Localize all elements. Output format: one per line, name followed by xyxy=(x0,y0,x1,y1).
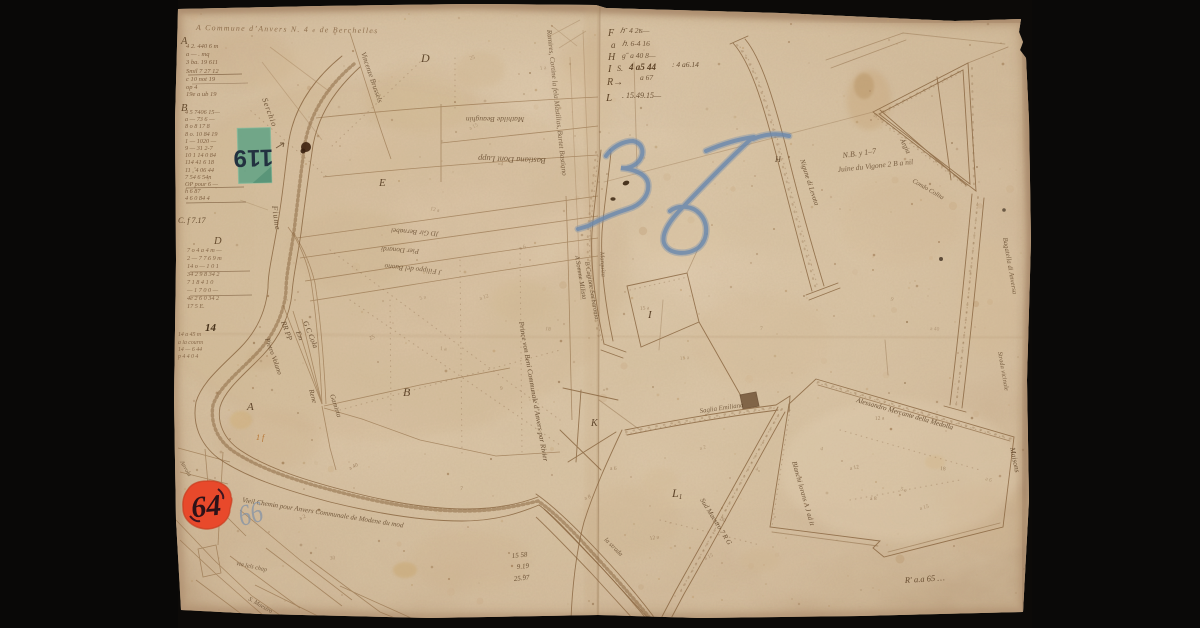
svg-text:L: L xyxy=(605,92,612,104)
svg-text:64: 64 xyxy=(190,489,223,525)
svg-text:15 a: 15 a xyxy=(640,305,650,312)
svg-text:7 o 4 a 4 m —: 7 o 4 a 4 m — xyxy=(187,247,222,254)
svg-text:12 a: 12 a xyxy=(875,415,885,422)
svg-text:H: H xyxy=(607,52,616,63)
svg-text:14: 14 xyxy=(205,322,217,334)
svg-text:— 1 7 0 0 —: — 1 7 0 0 — xyxy=(186,287,219,294)
svg-text:4 5 7406 15—: 4 5 7406 15— xyxy=(185,109,220,116)
svg-text:4 6 0 84 4: 4 6 0 84 4 xyxy=(185,195,210,202)
svg-text:C. f 7.17: C. f 7.17 xyxy=(178,216,207,225)
svg-text:4 a5 44: 4 a5 44 xyxy=(628,62,657,72)
svg-text:18: 18 xyxy=(940,466,946,473)
svg-text:14 o — 1 0 1: 14 o — 1 0 1 xyxy=(187,263,219,270)
svg-text:D: D xyxy=(213,236,222,247)
svg-text:c 10 not 19: c 10 not 19 xyxy=(186,76,216,83)
svg-text:a — 73 6 —: a — 73 6 — xyxy=(185,116,215,123)
svg-text:4 2. 440 6 m: 4 2. 440 6 m xyxy=(186,43,219,50)
svg-text:14 — 6 44: 14 — 6 44 xyxy=(178,346,202,353)
svg-text:17 5 E.: 17 5 E. xyxy=(187,303,205,310)
svg-text:I: I xyxy=(607,64,612,75)
svg-text:7 1 8 4 1 0: 7 1 8 4 1 0 xyxy=(187,279,214,286)
svg-text:h 6 87: h 6 87 xyxy=(185,188,201,195)
svg-text:D: D xyxy=(420,51,430,65)
svg-text:A: A xyxy=(246,401,254,413)
svg-text:a — . mq: a — . mq xyxy=(186,51,210,58)
svg-text:114 41 6 18: 114 41 6 18 xyxy=(185,159,215,166)
svg-text:3 ba. 19 611: 3 ba. 19 611 xyxy=(185,59,218,66)
svg-text:119: 119 xyxy=(233,144,274,172)
svg-text:ℎ˜ 4 2ʦ—: ℎ˜ 4 2ʦ— xyxy=(620,26,650,35)
svg-text:25.97: 25.97 xyxy=(513,573,530,583)
svg-text:F: F xyxy=(607,28,615,39)
svg-text:g˝ a 40 8—: g˝ a 40 8— xyxy=(622,51,656,60)
svg-text:a la courm: a la courm xyxy=(178,340,203,346)
svg-text:15 58: 15 58 xyxy=(511,550,528,560)
svg-text:1 — 1020 —: 1 — 1020 — xyxy=(185,138,217,145)
svg-text:B: B xyxy=(403,385,411,399)
svg-text:11 , 4 06 44: 11 , 4 06 44 xyxy=(185,167,214,174)
svg-text:ℎ. 6-4 16: ℎ. 6-4 16 xyxy=(622,39,650,48)
svg-text:19e a ub 19: 19e a ub 19 xyxy=(186,91,217,98)
svg-text:a 6: a 6 xyxy=(610,466,617,472)
svg-text:p 4 4 0 4: p 4 4 0 4 xyxy=(177,353,198,360)
svg-text:a 8: a 8 xyxy=(870,496,877,502)
svg-text:10 1 14 0 84: 10 1 14 0 84 xyxy=(185,152,216,159)
svg-text:8 o. 10 84 19: 8 o. 10 84 19 xyxy=(185,131,217,138)
svg-text:7 54 6 54n: 7 54 6 54n xyxy=(185,174,211,181)
svg-text:a: a xyxy=(611,40,616,50)
svg-text:14 a 45 m: 14 a 45 m xyxy=(178,331,201,338)
svg-text:7: 7 xyxy=(760,326,763,332)
svg-text:S.: S. xyxy=(617,64,623,73)
svg-text:. 15.49.15—: . 15.49.15— xyxy=(622,91,662,100)
svg-text:a 40: a 40 xyxy=(930,326,940,333)
svg-text:op 4: op 4 xyxy=(186,84,198,91)
svg-text:OP pour 6 —: OP pour 6 — xyxy=(185,181,219,188)
svg-text:15 a: 15 a xyxy=(680,355,690,362)
svg-text:a 67: a 67 xyxy=(640,73,653,82)
svg-text:9 — 31 2-7: 9 — 31 2-7 xyxy=(185,145,214,152)
svg-text:1 a: 1 a xyxy=(440,346,448,353)
svg-text:K: K xyxy=(590,418,599,429)
svg-text:Smil 7 27 12: Smil 7 27 12 xyxy=(186,68,219,75)
svg-text:2 — 7 7 6 9 m: 2 — 7 7 6 9 m xyxy=(187,255,222,262)
svg-text:9.19: 9.19 xyxy=(516,562,530,571)
svg-text:8 o 8 17 8: 8 o 8 17 8 xyxy=(185,123,211,130)
svg-text:: 4 a6.14: : 4 a6.14 xyxy=(672,60,699,69)
svg-text:R→: R→ xyxy=(606,77,623,88)
svg-text:E: E xyxy=(378,177,386,189)
